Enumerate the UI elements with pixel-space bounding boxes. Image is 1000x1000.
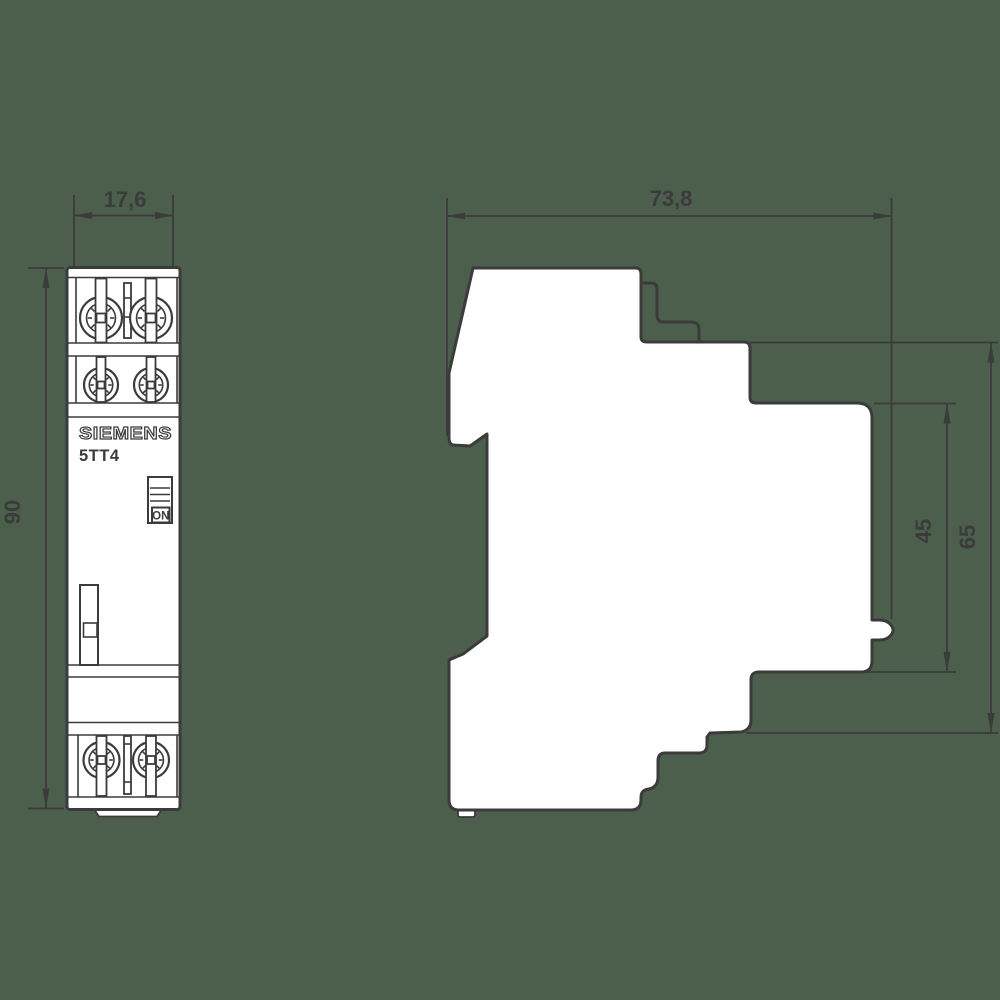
arrow-right-icon <box>874 213 892 220</box>
clamp-bar <box>97 736 107 796</box>
side-profile <box>449 268 893 810</box>
brand-label: SIEMENS <box>79 423 172 443</box>
screw-hub <box>98 756 106 764</box>
arrow-left-icon <box>447 213 465 220</box>
arrow-up-icon <box>43 268 50 288</box>
clamp-bar <box>146 736 156 796</box>
arrow-down-icon <box>43 789 50 809</box>
height-value: 90 <box>0 500 25 524</box>
front-body <box>67 268 180 810</box>
body-depth-value: 65 <box>955 525 980 549</box>
arrow-down-icon <box>944 652 951 672</box>
clamp-bar <box>147 357 156 402</box>
side-top-step <box>641 283 699 341</box>
width-value: 17,6 <box>104 187 147 212</box>
arrow-up-icon <box>944 404 951 424</box>
screw-hub <box>148 382 155 389</box>
model-label: 5TT4 <box>79 447 120 465</box>
dimension-height: 90 <box>0 268 64 809</box>
side-view <box>449 268 893 817</box>
terminal-center-slot <box>124 283 131 338</box>
dimension-width: 17,6 <box>74 187 173 266</box>
clamp-bar <box>96 279 107 343</box>
arrow-left-icon <box>74 212 92 219</box>
screw-hub <box>147 314 156 323</box>
screw-hub <box>97 314 106 323</box>
rail-offset-value: 45 <box>911 519 936 543</box>
switch-on-label: ON <box>152 511 169 523</box>
arrow-right-icon <box>155 212 173 219</box>
depth-value: 73,8 <box>650 186 693 211</box>
screw-hub <box>147 756 155 764</box>
dimensional-drawing: SIEMENS 5TT4 ON <box>0 0 1000 1000</box>
technical-drawing-canvas: SIEMENS 5TT4 ON <box>0 0 1000 1000</box>
front-view: SIEMENS 5TT4 ON <box>67 268 180 817</box>
clamp-bar <box>146 279 157 343</box>
clamp-bar <box>97 357 106 402</box>
arrow-up-icon <box>988 343 995 363</box>
screw-hub <box>98 382 105 389</box>
arrow-down-icon <box>988 713 995 733</box>
